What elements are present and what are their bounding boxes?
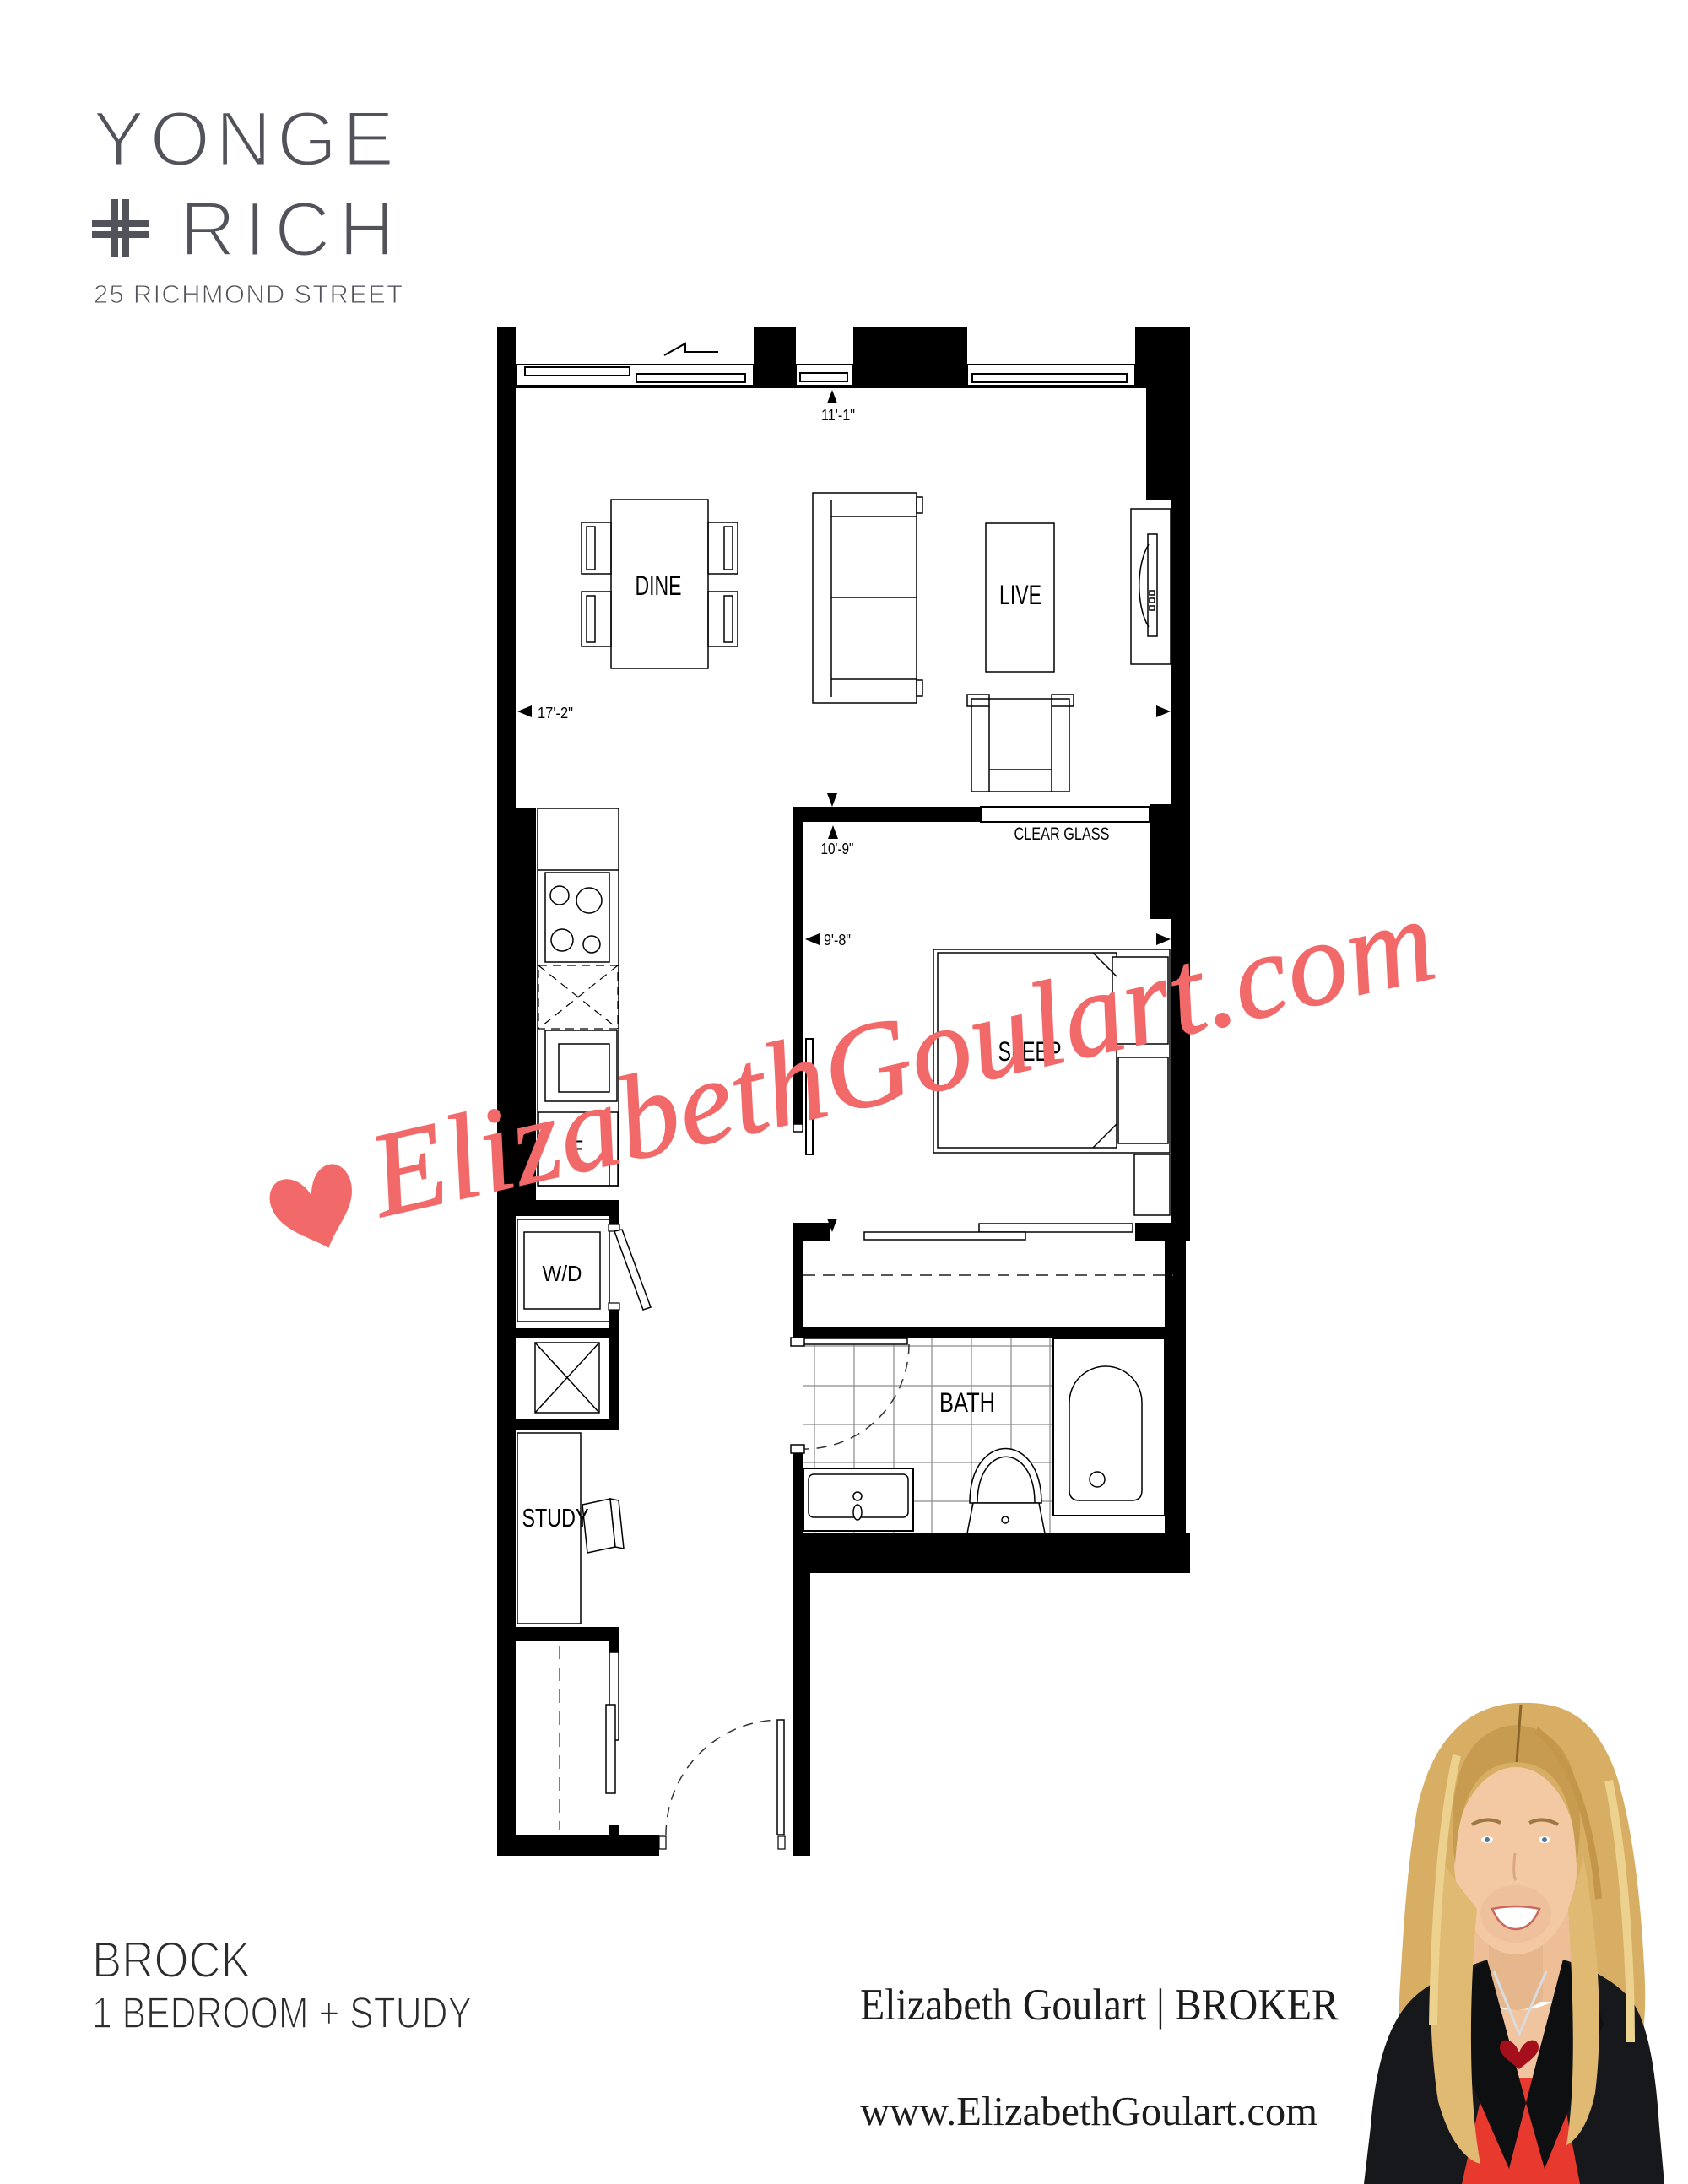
svg-text:17'-2": 17'-2" (538, 705, 573, 722)
svg-text:DINE: DINE (636, 570, 682, 601)
svg-text:10'-9": 10'-9" (821, 841, 854, 857)
svg-text:Elizabeth Goulart | BROKER: Elizabeth Goulart | BROKER (860, 1981, 1339, 2030)
svg-text:YONGE: YONGE (93, 96, 394, 182)
svg-text:11'-1": 11'-1" (821, 407, 855, 424)
svg-text:W/D: W/D (543, 1261, 582, 1286)
svg-text:25 RICHMOND STREET: 25 RICHMOND STREET (94, 279, 403, 309)
svg-text:LIVE: LIVE (999, 580, 1041, 610)
svg-text:STUDY: STUDY (522, 1503, 589, 1533)
svg-text:CLEAR GLASS: CLEAR GLASS (1014, 824, 1110, 844)
svg-text:BROCK: BROCK (92, 1932, 251, 1988)
svg-text:1 BEDROOM + STUDY: 1 BEDROOM + STUDY (92, 1989, 472, 2038)
svg-text:www.ElizabethGoulart.com: www.ElizabethGoulart.com (860, 2088, 1317, 2134)
svg-text:9'-8": 9'-8" (824, 932, 851, 949)
svg-text:RICH: RICH (180, 187, 395, 273)
svg-text:BATH: BATH (939, 1387, 995, 1418)
